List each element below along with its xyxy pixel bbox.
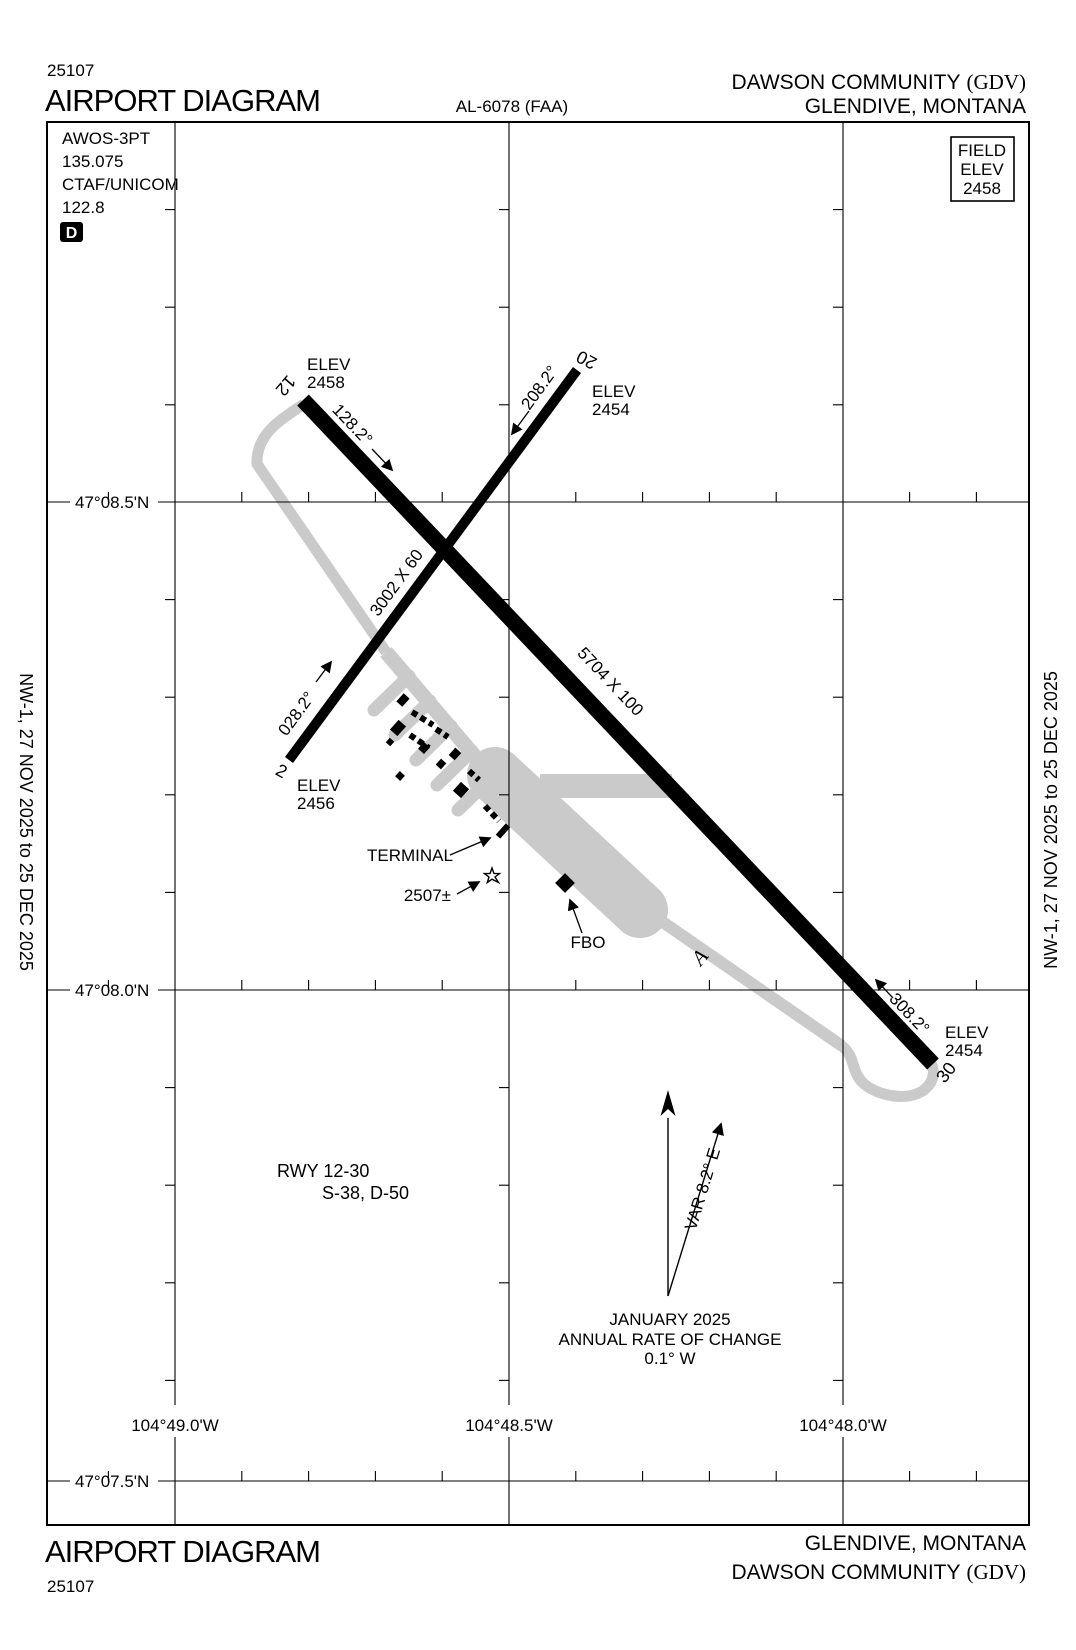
taxiway-network xyxy=(257,404,933,1096)
margin-note-left: NW-1, 27 NOV 2025 to 25 DEC 2025 xyxy=(16,673,36,971)
city-state-bottom: GLENDIVE, MONTANA xyxy=(805,1532,1026,1555)
page-title-bottom: AIRPORT DIAGRAM xyxy=(45,1534,320,1569)
beacon-elevation: 2507± xyxy=(404,886,451,905)
awos-label: AWOS-3PT xyxy=(62,129,150,148)
fbo-arrow xyxy=(570,900,582,933)
awos-frequency: 135.075 xyxy=(62,152,123,171)
elev-value-12: 2458 xyxy=(307,373,345,392)
taxiway-a xyxy=(628,898,842,1046)
variation-label: VAR 8.2° E xyxy=(681,1146,724,1233)
airport-id-text-bottom: (GDV) xyxy=(967,1560,1026,1584)
city-state-top: GLENDIVE, MONTANA xyxy=(805,95,1026,118)
variation-date: JANUARY 2025 xyxy=(609,1310,730,1329)
elev-label-2: ELEV xyxy=(297,776,341,795)
ctaf-label: CTAF/UNICOM xyxy=(62,175,179,194)
runway-labels: 12 30 2 20 ELEV 2458 ELEV 2454 ELEV 2456… xyxy=(272,346,989,1086)
field-elev-value: 2458 xyxy=(963,179,1001,198)
airport-name-text-bottom: DAWSON COMMUNITY xyxy=(731,1561,960,1584)
airport-name-top: DAWSON COMMUNITY(GDV) xyxy=(731,70,1026,94)
airport-id-text: (GDV) xyxy=(967,70,1026,94)
margin-note-right: NW-1, 27 NOV 2025 to 25 DEC 2025 xyxy=(1041,671,1061,969)
airport-name-text: DAWSON COMMUNITY xyxy=(731,71,960,94)
field-elev-line1: FIELD xyxy=(958,141,1006,160)
elev-label-12: ELEV xyxy=(307,355,351,374)
hangar-building xyxy=(395,771,405,781)
heading-arrow-2 xyxy=(316,662,331,682)
lat-label-2: 47°08.0'N xyxy=(75,981,149,1000)
rwy-data-line2: S-38, D-50 xyxy=(322,1183,409,1203)
elev-value-2: 2456 xyxy=(297,794,335,813)
rwy-data-line1: RWY 12-30 xyxy=(277,1161,369,1181)
elev-value-20: 2454 xyxy=(592,400,630,419)
page-title-top: AIRPORT DIAGRAM xyxy=(45,83,320,118)
notes: RWY 12-30 S-38, D-50 VAR 8.2° E JANUARY … xyxy=(277,1090,781,1368)
procedure-ref: AL-6078 (FAA) xyxy=(456,97,568,116)
runways xyxy=(289,370,933,1064)
beacon-arrow xyxy=(457,882,479,894)
ctaf-frequency: 122.8 xyxy=(62,198,105,217)
airport-diagram-page: 25107 AIRPORT DIAGRAM AL-6078 (FAA) DAWS… xyxy=(0,0,1076,1650)
terminal-label: TERMINAL xyxy=(367,846,453,865)
rwy-end-12: 12 xyxy=(272,372,300,400)
lon-label-2: 104°48.5'W xyxy=(465,1416,553,1435)
rwy-end-2: 2 xyxy=(272,760,290,782)
lat-label-1: 47°08.5'N xyxy=(75,493,149,512)
hangar-building xyxy=(436,759,447,770)
airport-diagram-chart: 25107 AIRPORT DIAGRAM AL-6078 (FAA) DAWS… xyxy=(0,0,1076,1650)
elev-value-30: 2454 xyxy=(945,1041,983,1060)
lat-label-3: 47°07.5'N xyxy=(75,1472,149,1491)
field-elevation-box: FIELD ELEV 2458 xyxy=(951,137,1014,201)
variation-rate-1: ANNUAL RATE OF CHANGE xyxy=(559,1330,782,1349)
d-symbol-letter: D xyxy=(66,225,78,242)
true-north-arrowhead-icon xyxy=(661,1090,676,1116)
elev-label-20: ELEV xyxy=(592,382,636,401)
chart-code-bottom: 25107 xyxy=(47,1577,94,1596)
chart-code-top: 25107 xyxy=(47,61,94,80)
terminal-arrow xyxy=(450,838,490,855)
elev-label-30: ELEV xyxy=(945,1023,989,1042)
fbo-label: FBO xyxy=(571,933,606,952)
field-elev-line2: ELEV xyxy=(960,160,1004,179)
variation-rate-2: 0.1° W xyxy=(644,1349,695,1368)
airport-name-bottom: DAWSON COMMUNITY(GDV) xyxy=(731,1560,1026,1584)
lon-label-1: 104°49.0'W xyxy=(131,1416,219,1435)
lon-label-3: 104°48.0'W xyxy=(799,1416,887,1435)
beacon-star-icon xyxy=(484,868,499,883)
rwy-end-20: 20 xyxy=(573,346,600,373)
terminal-building xyxy=(496,823,510,838)
comm-info-block: AWOS-3PT 135.075 CTAF/UNICOM 122.8 D xyxy=(60,129,179,242)
